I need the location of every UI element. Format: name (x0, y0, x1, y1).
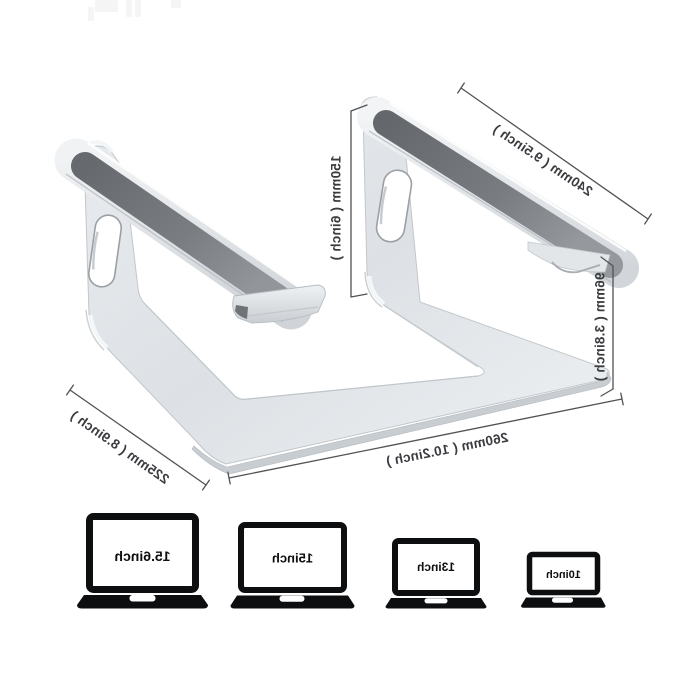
product-dimension-diagram: 240mm ( 9.5inch ) 150mm ( 6inch ) 96mm (… (0, 0, 700, 700)
laptop-size-label: 13inch (417, 560, 455, 574)
laptop-icon-15inch: 15inch (231, 525, 355, 609)
artifact-mark (88, 7, 94, 21)
laptop-size-label: 15inch (272, 551, 313, 566)
laptop-base-notch (130, 595, 156, 602)
stand-diagram-canvas: 240mm ( 9.5inch ) 150mm ( 6inch ) 96mm (… (0, 0, 700, 700)
artifact-mark (135, 0, 141, 17)
artifact-mark (95, 0, 118, 12)
laptop-base-notch (425, 598, 448, 603)
artifact-mark (126, 0, 132, 17)
laptop-size-label: 10inch (546, 569, 581, 581)
laptop-size-label: 15.6inch (114, 548, 170, 564)
laptop-base-notch (280, 596, 305, 602)
dimension-label-lift-height: 96mm ( 3.8inch ) (593, 273, 608, 382)
artifact-mark (171, 0, 181, 8)
laptop-base-notch (552, 598, 573, 603)
dimension-label-stand-height: 150mm ( 6inch ) (329, 155, 344, 260)
laptop-icon-13inch: 13inch (386, 541, 487, 609)
laptop-icon-10inch: 10inch (521, 555, 606, 608)
